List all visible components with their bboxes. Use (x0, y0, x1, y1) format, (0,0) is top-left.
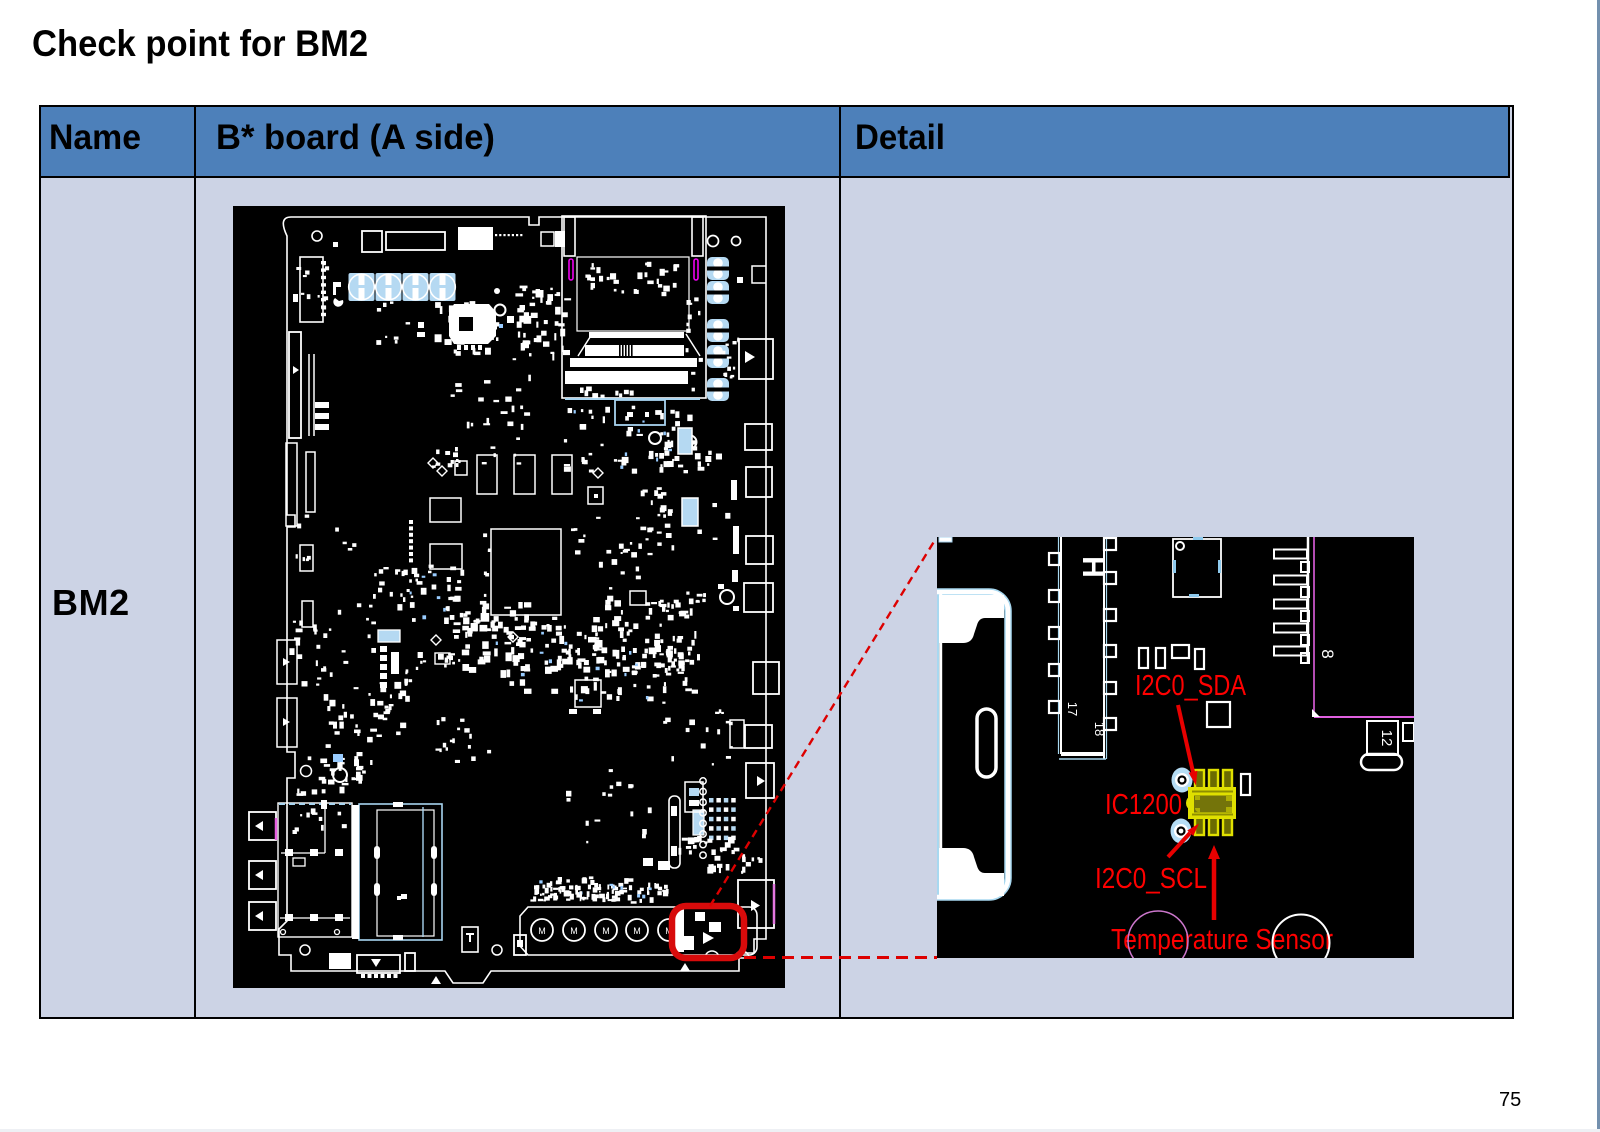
svg-text:8: 8 (1318, 649, 1337, 658)
svg-text:M: M (538, 926, 546, 936)
svg-text:I2C0_SCL: I2C0_SCL (1095, 863, 1207, 895)
svg-text:Temperature Sensor: Temperature Sensor (1111, 924, 1333, 956)
svg-text:M: M (570, 926, 578, 936)
svg-text:I2C0_SDA: I2C0_SDA (1135, 670, 1247, 702)
svg-text:12: 12 (1378, 730, 1395, 747)
svg-text:M: M (633, 926, 641, 936)
svg-text:IC1200: IC1200 (1105, 789, 1182, 821)
svg-text:M: M (602, 926, 610, 936)
svg-text:18: 18 (1092, 722, 1107, 736)
svg-text:H: H (1076, 556, 1109, 578)
svg-text:17: 17 (1065, 702, 1080, 716)
